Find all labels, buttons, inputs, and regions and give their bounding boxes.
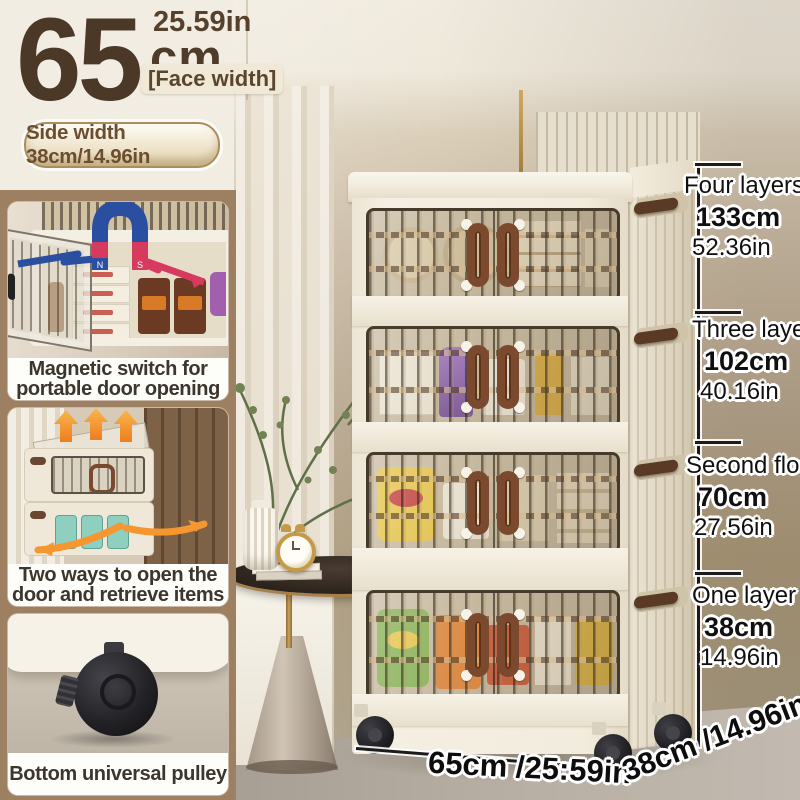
svg-text:S: S: [137, 260, 143, 270]
side-table-stem: [286, 590, 292, 648]
caption-line: Two ways to open the: [19, 565, 217, 585]
layer-divider: [352, 548, 628, 590]
magnet-icon: N S: [8, 202, 228, 358]
tick-four-layers: [695, 163, 741, 166]
feature-caption: Two ways to open the door and retrieve i…: [8, 564, 228, 606]
side-table-base-cap: [246, 760, 338, 774]
door-handle: [461, 219, 525, 291]
caption-line: portable door opening: [16, 379, 220, 399]
door-handle: [461, 609, 525, 681]
cabinet-layer-window-4: [366, 590, 620, 700]
feature-photo-two-way-open: [8, 408, 228, 564]
svg-text:N: N: [97, 260, 104, 270]
face-width-value: 65: [16, 0, 139, 128]
tick-second-floor: [695, 441, 741, 444]
feature-photo-pulley: [8, 614, 228, 753]
caption-line: Magnetic switch for: [28, 359, 207, 379]
tick-three-layers: [695, 311, 741, 314]
layer-divider: [352, 296, 628, 326]
layer-divider: [352, 422, 628, 452]
feature-caption: Bottom universal pulley: [8, 753, 228, 795]
feature-card-two-way-open: Two ways to open the door and retrieve i…: [8, 408, 228, 606]
measurement-second-floor: Second floor 70cm 27.56in: [686, 452, 800, 542]
door-handle: [461, 467, 525, 539]
measurement-four-layers: Four layers 133cm 52.36in: [684, 172, 800, 262]
side-width-badge: Side width 38cm/14.96in: [24, 122, 220, 168]
door-handle: [461, 341, 525, 413]
vase: [243, 508, 279, 570]
product-infographic: 65 25.59in cm [Face width] Side width 38…: [0, 0, 800, 800]
caption-line: Bottom universal pulley: [9, 764, 227, 784]
alarm-clock: [276, 532, 316, 572]
measurement-one-layer: One layer 38cm 14.96in: [692, 582, 796, 672]
storage-cabinet: [352, 168, 698, 780]
face-width-caption: [Face width]: [141, 64, 283, 94]
feature-panel: N S Magnetic switch for portable door op…: [0, 190, 236, 800]
cabinet-layer-window-3: [366, 452, 620, 554]
measurement-three-layers: Three layers 102cm 40.16in: [692, 316, 800, 406]
feature-card-magnetic-switch: N S Magnetic switch for portable door op…: [8, 202, 228, 400]
caption-line: door and retrieve items: [12, 585, 224, 605]
cabinet-base-band: [352, 694, 628, 726]
up-arrows-icon: [8, 408, 228, 564]
caster-wheel-icon: [74, 652, 158, 736]
curved-arrows-icon: [38, 524, 204, 550]
tick-one-layer: [695, 572, 741, 575]
cabinet-layer-window-2: [366, 326, 620, 428]
feature-caption: Magnetic switch for portable door openin…: [8, 358, 228, 400]
feature-card-pulley: Bottom universal pulley: [8, 614, 228, 795]
cabinet-layer-window-1: [366, 208, 620, 302]
feature-photo-magnetic-switch: N S: [8, 202, 228, 358]
